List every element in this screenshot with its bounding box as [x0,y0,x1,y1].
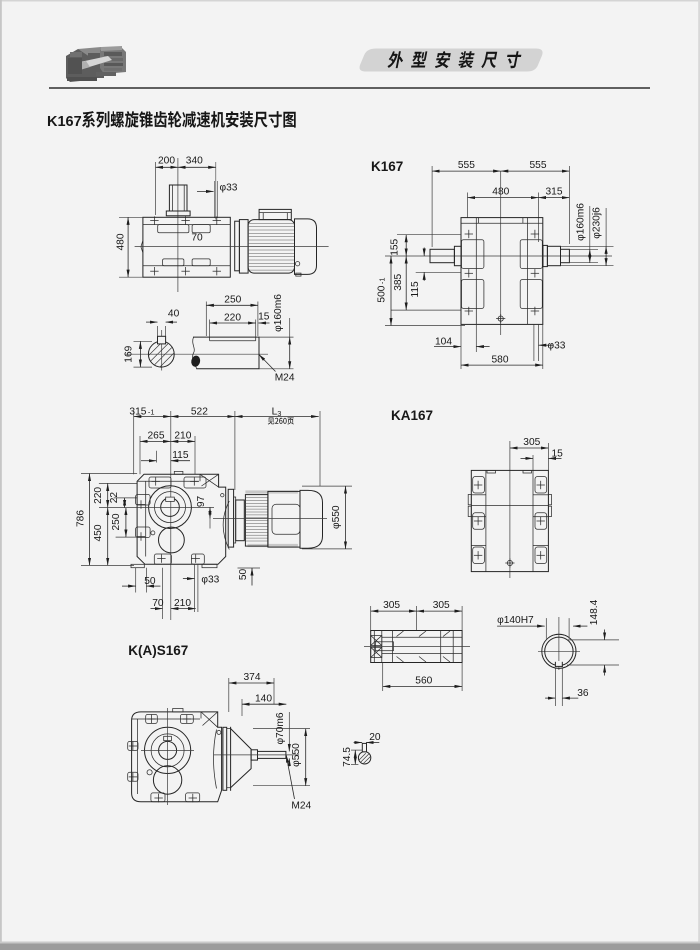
svg-text:220: 220 [224,312,241,323]
svg-text:50: 50 [144,576,156,587]
svg-text:φ33: φ33 [548,340,566,351]
svg-text:22: 22 [109,492,120,504]
svg-text:480: 480 [115,233,126,250]
svg-text:315 -1: 315 -1 [129,407,154,418]
svg-text:104: 104 [435,337,452,348]
svg-text:250: 250 [111,513,122,530]
svg-text:580: 580 [492,355,509,366]
svg-text:115: 115 [410,281,421,298]
svg-text:L3: L3 [272,407,282,419]
svg-text:φ550: φ550 [331,505,342,529]
svg-text:φ160m6: φ160m6 [273,294,284,332]
svg-text:K167: K167 [371,159,403,174]
svg-text:φ550: φ550 [291,743,302,767]
svg-text:374: 374 [244,672,261,683]
svg-text:250: 250 [224,294,241,305]
svg-text:50: 50 [238,569,249,581]
svg-text:265: 265 [148,430,165,441]
svg-text:500 -1: 500 -1 [377,277,388,302]
svg-text:786: 786 [76,510,87,527]
svg-text:560: 560 [415,675,432,686]
svg-text:305: 305 [523,437,540,448]
svg-text:155: 155 [390,238,401,255]
svg-text:315: 315 [546,187,563,198]
svg-text:305: 305 [383,600,400,611]
svg-text:555: 555 [458,160,475,171]
svg-text:15: 15 [258,312,270,323]
svg-text:210: 210 [174,430,191,441]
svg-text:M24: M24 [275,373,295,384]
svg-text:305: 305 [433,600,450,611]
svg-text:φ33: φ33 [220,183,238,194]
svg-text:97: 97 [196,496,207,508]
svg-text:220: 220 [93,487,104,504]
svg-text:φ140H7: φ140H7 [497,615,534,626]
svg-text:φ33: φ33 [201,574,219,585]
svg-text:210: 210 [174,598,191,609]
svg-text:522: 522 [191,407,208,418]
svg-text:20: 20 [369,732,381,743]
svg-text:450: 450 [93,524,104,541]
svg-text:385: 385 [393,273,404,290]
svg-text:K(A)S167: K(A)S167 [128,643,188,658]
svg-text:φ230j6: φ230j6 [592,207,603,239]
svg-text:200: 200 [158,156,175,167]
svg-text:140: 140 [255,693,272,704]
svg-text:KA167: KA167 [391,408,433,423]
svg-text:φ160m6: φ160m6 [575,203,586,241]
svg-text:40: 40 [168,309,180,320]
svg-text:340: 340 [186,156,203,167]
svg-text:36: 36 [577,688,589,699]
svg-text:70: 70 [191,233,203,244]
svg-text:70: 70 [152,598,164,609]
svg-text:74.5: 74.5 [342,747,353,767]
svg-text:115: 115 [172,450,189,461]
svg-text:148.4: 148.4 [589,599,600,625]
svg-text:K167: K167 [47,114,82,130]
svg-text:555: 555 [530,160,547,171]
svg-text:M24: M24 [291,801,311,812]
svg-text:15: 15 [552,448,564,459]
svg-text:169: 169 [123,345,134,362]
